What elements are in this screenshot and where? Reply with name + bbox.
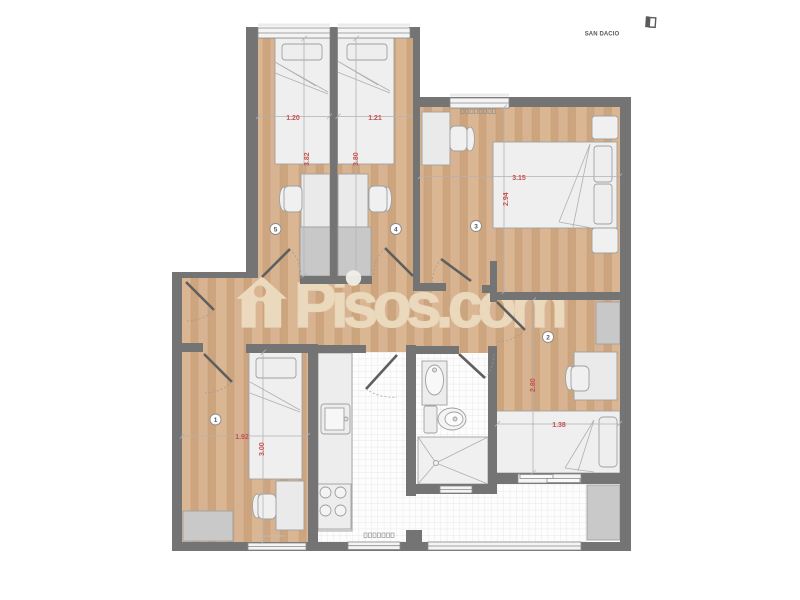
svg-text:1.21: 1.21 [368, 115, 382, 122]
svg-text:1.20: 1.20 [286, 115, 300, 122]
svg-text:1.38: 1.38 [552, 422, 566, 429]
svg-text:2: 2 [546, 335, 550, 342]
svg-text:3.15: 3.15 [512, 175, 526, 182]
svg-text:3: 3 [474, 224, 478, 231]
svg-text:pisos.com plano: pisos.com plano [256, 533, 286, 538]
svg-text:2.80: 2.80 [530, 378, 537, 392]
svg-text:5: 5 [274, 227, 278, 234]
svg-text:SAN DACIO: SAN DACIO [585, 32, 620, 38]
svg-text:1: 1 [214, 417, 218, 424]
svg-text:1.92: 1.92 [235, 434, 249, 441]
svg-text:3.00: 3.00 [259, 442, 266, 456]
svg-text:3.80: 3.80 [353, 152, 360, 166]
svg-text:2.94: 2.94 [503, 192, 510, 206]
svg-text:4: 4 [394, 227, 398, 234]
svg-text:3.82: 3.82 [304, 152, 311, 166]
